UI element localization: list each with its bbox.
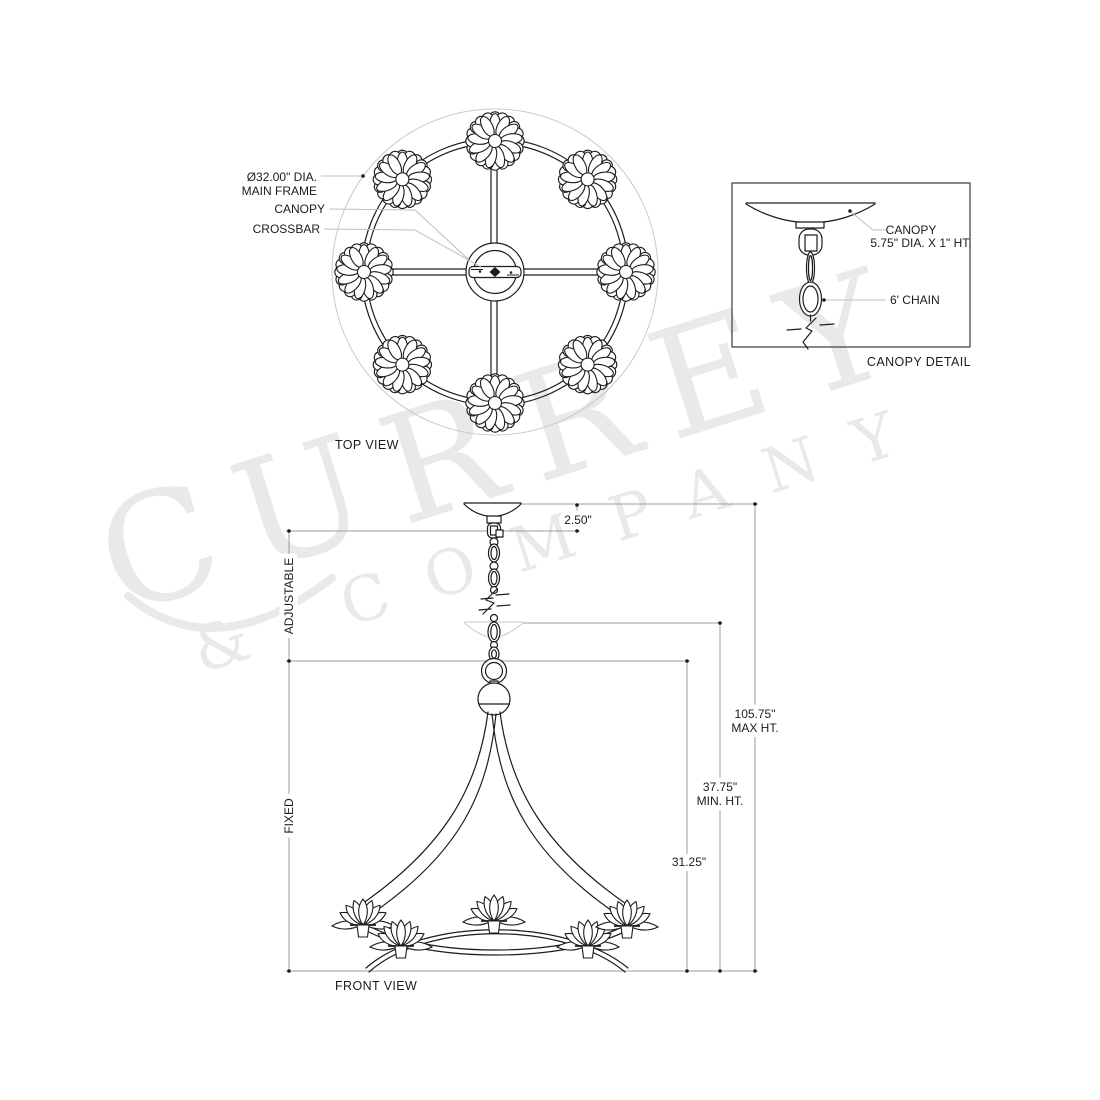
lower-chain-and-finial	[478, 622, 510, 715]
leader-detail-canopy	[851, 212, 886, 230]
detail-chain-label: 6' CHAIN	[890, 293, 940, 307]
rosette-flower	[334, 242, 393, 301]
dim-drop: 2.50"	[564, 513, 592, 527]
canopy-detail-title: CANOPY DETAIL	[867, 355, 971, 369]
dim-min-line2: MIN. HT.	[697, 794, 744, 808]
detail-canopy-label-line2: 5.75" DIA. X 1" HT.	[870, 236, 971, 250]
detail-canopy-label-line1: CANOPY	[886, 223, 937, 237]
dim-min-line1: 37.75"	[703, 780, 737, 794]
rosette-flower	[465, 111, 524, 170]
main-frame-label-line2: MAIN FRAME	[242, 184, 317, 198]
dim-body: 31.25"	[672, 855, 706, 869]
top-view-title: TOP VIEW	[335, 438, 399, 452]
front-view-title: FRONT VIEW	[335, 979, 417, 993]
dim-max-line1: 105.75"	[735, 707, 776, 721]
rosette-flower	[373, 150, 432, 209]
crossbar	[469, 267, 521, 278]
dim-adjustable: ADJUSTABLE	[282, 558, 296, 634]
arms	[356, 712, 632, 915]
dim-max-line2: MAX HT.	[731, 721, 778, 735]
ball-finial	[478, 683, 510, 715]
spec-drawing-canvas: CURREY & COMPANY	[0, 0, 1100, 1100]
lotus-flower	[463, 895, 525, 933]
dim-fixed: FIXED	[282, 798, 296, 834]
crossbar-label: CROSSBAR	[253, 222, 321, 236]
canopy-label: CANOPY	[274, 202, 325, 216]
lotus-flowers	[332, 895, 658, 958]
rosette-flower	[596, 242, 655, 301]
main-frame-label-line1: Ø32.00" DIA.	[247, 170, 317, 184]
rosette-flower	[558, 150, 617, 209]
